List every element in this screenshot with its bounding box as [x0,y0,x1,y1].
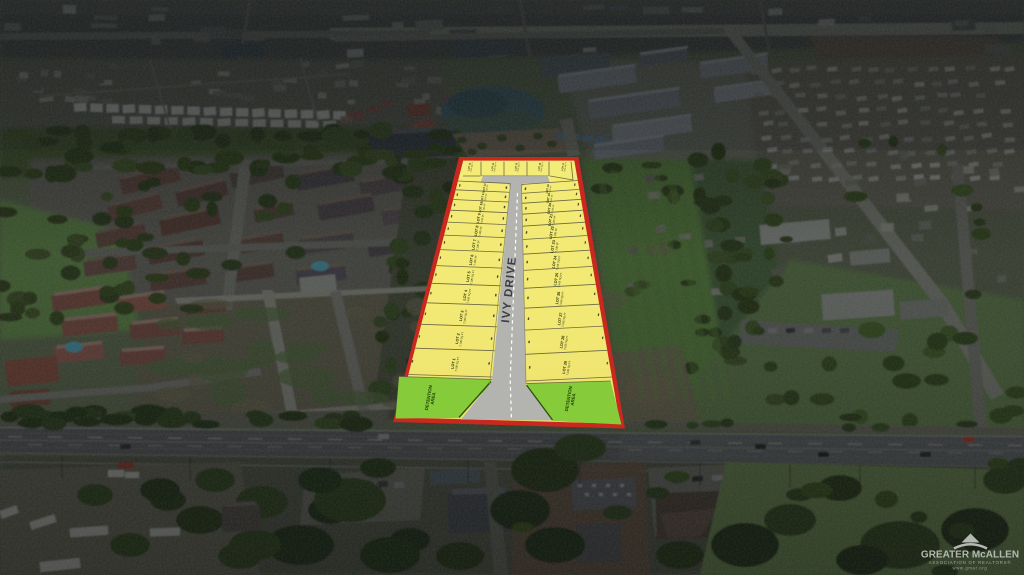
svg-text:www.gmar.org: www.gmar.org [953,566,988,571]
svg-text:ASSOCIATION OF REALTORS®: ASSOCIATION OF REALTORS® [929,560,1012,565]
svg-text:GREATER McALLEN: GREATER McALLEN [921,550,1019,561]
